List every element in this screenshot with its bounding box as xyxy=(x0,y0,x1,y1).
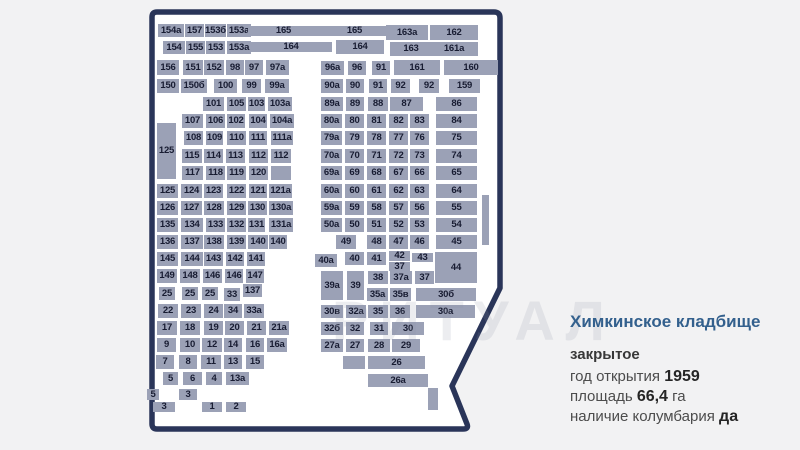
map-section-47: 47 xyxy=(389,235,408,249)
map-section-37: 37 xyxy=(415,271,434,284)
map-section-31: 31 xyxy=(370,322,388,335)
map-section-65: 65 xyxy=(436,166,477,180)
map-section-55: 55 xyxy=(436,201,477,215)
map-section-132: 132 xyxy=(227,218,246,232)
map-section-66: 66 xyxy=(410,166,429,180)
map-section-36: 36 xyxy=(390,305,410,318)
map-section-68: 68 xyxy=(367,166,386,180)
map-section-50: 50 xyxy=(345,218,364,232)
map-section-37: 37 xyxy=(389,262,410,271)
info-row-opened: год открытия 1959 xyxy=(570,367,796,387)
map-section-12: 12 xyxy=(202,338,222,352)
map-section-69a: 69a xyxy=(321,166,342,180)
map-section-58: 58 xyxy=(367,201,386,215)
map-section-136: 136 xyxy=(157,235,178,249)
map-section-40a: 40a xyxy=(315,254,337,267)
map-section-117: 117 xyxy=(182,166,203,180)
map-section-113: 113 xyxy=(226,149,245,163)
map-section-78: 78 xyxy=(367,131,386,145)
map-section-137: 137 xyxy=(243,284,262,297)
map-section-130a: 130a xyxy=(269,201,293,215)
map-section-26a: 26a xyxy=(368,374,428,387)
map-section-146: 146 xyxy=(225,269,243,283)
map-section-3: 3 xyxy=(179,389,197,400)
map-section-125: 125 xyxy=(157,123,176,179)
map-section-153a: 153a xyxy=(227,41,251,54)
map-section-21: 21 xyxy=(247,321,266,335)
columbarium-label: наличие колумбария xyxy=(570,408,715,425)
map-section-131a: 131a xyxy=(269,218,293,232)
map-section-40: 40 xyxy=(345,252,364,265)
map-section-34: 34 xyxy=(224,304,242,318)
map-section xyxy=(482,195,489,245)
area-label: площадь xyxy=(570,388,633,405)
map-section-135: 135 xyxy=(157,218,178,232)
map-section-73: 73 xyxy=(410,149,429,163)
map-section-83: 83 xyxy=(410,114,429,128)
map-section-29: 29 xyxy=(392,339,420,352)
map-section-148: 148 xyxy=(180,269,200,283)
map-section-62: 62 xyxy=(389,184,408,198)
map-section-13a: 13a xyxy=(226,372,249,385)
map-section-44: 44 xyxy=(435,252,477,283)
cemetery-map-widget: 154a157153б153a165165163a162154155153153… xyxy=(0,0,800,450)
map-section-165: 165 xyxy=(319,26,390,36)
area-value: 66,4 xyxy=(637,388,668,405)
map-section-27a: 27a xyxy=(321,339,343,352)
map-section-125: 125 xyxy=(157,184,178,198)
map-section-82: 82 xyxy=(389,114,408,128)
opened-value: 1959 xyxy=(664,368,700,385)
map-section-129: 129 xyxy=(227,201,246,215)
map-section-14: 14 xyxy=(224,338,242,352)
map-section-59a: 59a xyxy=(321,201,342,215)
map-section-90: 90 xyxy=(346,79,364,93)
map-section-91: 91 xyxy=(369,79,387,93)
map-section-54: 54 xyxy=(436,218,477,232)
map-section-59: 59 xyxy=(345,201,364,215)
map-section-16a: 16a xyxy=(267,338,287,352)
map-section-162: 162 xyxy=(430,25,478,40)
map-section-101: 101 xyxy=(203,97,224,111)
map-section-119: 119 xyxy=(227,166,246,180)
map-section-30б: 30б xyxy=(416,288,476,301)
columbarium-value: да xyxy=(719,408,738,425)
map-section-26: 26 xyxy=(368,356,425,369)
map-section-108: 108 xyxy=(184,131,203,145)
map-section xyxy=(428,388,438,410)
map-section-147: 147 xyxy=(246,269,264,283)
map-section-150: 150 xyxy=(157,79,179,93)
map-section-121: 121 xyxy=(249,184,267,198)
map-section-72: 72 xyxy=(389,149,408,163)
map-section-91: 91 xyxy=(372,61,390,75)
map-section-81: 81 xyxy=(367,114,386,128)
map-section-130: 130 xyxy=(248,201,267,215)
map-section-16: 16 xyxy=(246,338,264,352)
map-section-32: 32 xyxy=(346,322,364,335)
map-section-33a: 33a xyxy=(244,304,264,318)
map-section-155: 155 xyxy=(186,41,205,54)
map-section-102: 102 xyxy=(227,114,245,128)
map-section-70a: 70a xyxy=(321,149,342,163)
map-section-105: 105 xyxy=(227,97,246,111)
map-section-164: 164 xyxy=(336,40,384,54)
map-section-13: 13 xyxy=(224,355,242,369)
map-section-106: 106 xyxy=(206,114,225,128)
map-section-99a: 99a xyxy=(265,79,289,93)
map-section-8: 8 xyxy=(179,355,197,369)
map-section-140: 140 xyxy=(269,235,287,249)
map-section-141: 141 xyxy=(247,252,265,266)
map-section-70: 70 xyxy=(345,149,364,163)
map-section-63: 63 xyxy=(410,184,429,198)
map-section-6: 6 xyxy=(183,372,202,385)
map-section-57: 57 xyxy=(389,201,408,215)
map-section-110: 110 xyxy=(227,131,246,145)
map-section-37a: 37a xyxy=(390,271,412,284)
map-section-99: 99 xyxy=(242,79,261,93)
map-section-5: 5 xyxy=(147,389,159,400)
map-section-120: 120 xyxy=(249,166,268,180)
map-section-149: 149 xyxy=(157,269,177,283)
map-section-49: 49 xyxy=(336,235,356,249)
map-section-115: 115 xyxy=(182,149,202,163)
map-section-56: 56 xyxy=(410,201,429,215)
map-section-32a: 32a xyxy=(346,305,366,318)
map-section-118: 118 xyxy=(206,166,225,180)
map-section-69: 69 xyxy=(345,166,364,180)
map-section-107: 107 xyxy=(182,114,203,128)
map-section-131: 131 xyxy=(248,218,265,232)
map-section-128: 128 xyxy=(204,201,224,215)
map-section-35a: 35a xyxy=(367,288,388,301)
map-section-89a: 89a xyxy=(321,97,343,111)
map-section-98: 98 xyxy=(226,60,244,75)
map-section-153: 153 xyxy=(206,41,225,54)
map-section-15: 15 xyxy=(246,355,264,369)
map-section-27: 27 xyxy=(346,339,364,352)
map-section xyxy=(271,166,291,180)
map-section-43: 43 xyxy=(412,253,433,262)
map-section-60a: 60a xyxy=(321,184,342,198)
map-section-30a: 30a xyxy=(416,305,475,318)
map-section-163: 163 xyxy=(390,42,432,56)
map-section-3: 3 xyxy=(153,402,175,412)
map-section-152: 152 xyxy=(204,60,224,75)
map-section-163a: 163a xyxy=(386,25,428,40)
map-section-32б: 32б xyxy=(321,322,343,335)
map-section-161a: 161a xyxy=(430,42,478,56)
map-section-156: 156 xyxy=(157,60,179,75)
map-section-144: 144 xyxy=(181,252,203,266)
map-section-112: 112 xyxy=(249,149,268,163)
map-section-151: 151 xyxy=(183,60,203,75)
map-section-103a: 103a xyxy=(268,97,292,111)
map-section-25: 25 xyxy=(159,287,175,300)
map-section-111: 111 xyxy=(249,131,267,145)
map-section-19: 19 xyxy=(204,321,223,335)
map-section-92: 92 xyxy=(419,79,439,93)
map-section-28: 28 xyxy=(368,339,390,352)
info-row-columbarium: наличие колумбария да xyxy=(570,407,796,427)
map-section-25: 25 xyxy=(202,287,218,300)
map-section-142: 142 xyxy=(226,252,244,266)
map-section-96: 96 xyxy=(348,61,366,75)
map-section-64: 64 xyxy=(436,184,477,198)
map-section-35: 35 xyxy=(368,305,388,318)
map-section-51: 51 xyxy=(367,218,386,232)
map-section-89: 89 xyxy=(346,97,364,111)
map-section-75: 75 xyxy=(436,131,477,145)
map-section-71: 71 xyxy=(367,149,386,163)
map-section-111a: 111a xyxy=(271,131,293,145)
map-section-92: 92 xyxy=(391,79,410,93)
map-section-100: 100 xyxy=(214,79,237,93)
map-section-104a: 104a xyxy=(270,114,294,128)
map-section-121a: 121a xyxy=(269,184,292,198)
map-section-139: 139 xyxy=(227,235,246,249)
map-section-39a: 39a xyxy=(321,271,343,300)
map-section-74: 74 xyxy=(436,149,477,163)
map-section-38: 38 xyxy=(368,271,388,284)
map-section-42: 42 xyxy=(389,251,410,261)
map-section-127: 127 xyxy=(181,201,202,215)
map-section-35в: 35в xyxy=(390,288,411,301)
map-section-23: 23 xyxy=(181,304,201,318)
map-section-5: 5 xyxy=(163,372,178,385)
map-section-25: 25 xyxy=(182,287,198,300)
map-section-76: 76 xyxy=(410,131,429,145)
map-section-30в: 30в xyxy=(321,305,343,318)
map-section-150б: 150б xyxy=(181,79,207,93)
map-section-159: 159 xyxy=(449,79,480,93)
map-section-10: 10 xyxy=(180,338,200,352)
map-section-7: 7 xyxy=(156,355,174,369)
area-unit: га xyxy=(672,388,685,405)
map-section-61: 61 xyxy=(367,184,386,198)
map-section-30: 30 xyxy=(392,322,424,335)
map-section-17: 17 xyxy=(157,321,177,335)
map-section-97: 97 xyxy=(245,60,263,75)
map-section-60: 60 xyxy=(345,184,364,198)
map-section-160: 160 xyxy=(444,60,498,75)
cemetery-info-panel: Химкинское кладбище закрытое год открыти… xyxy=(570,312,796,427)
map-section-1: 1 xyxy=(202,402,222,412)
cemetery-title: Химкинское кладбище xyxy=(570,312,796,332)
map-section-153б: 153б xyxy=(205,24,226,37)
map-section-112: 112 xyxy=(271,149,291,163)
map-section-79: 79 xyxy=(345,131,364,145)
opened-label: год открытия xyxy=(570,368,660,385)
map-section-104: 104 xyxy=(249,114,267,128)
map-section-137: 137 xyxy=(181,235,203,249)
map-section-80: 80 xyxy=(345,114,364,128)
map-section-146: 146 xyxy=(203,269,222,283)
map-section-77: 77 xyxy=(389,131,408,145)
map-section-134: 134 xyxy=(181,218,203,232)
map-section-80a: 80a xyxy=(321,114,342,128)
map-section-161: 161 xyxy=(394,60,440,75)
map-section-157: 157 xyxy=(185,24,204,37)
map-section-79a: 79a xyxy=(321,131,342,145)
map-section-53: 53 xyxy=(410,218,429,232)
map-section-96a: 96a xyxy=(321,61,344,75)
info-row-area: площадь 66,4 га xyxy=(570,387,796,407)
map-section-33: 33 xyxy=(224,288,240,301)
map-section-50a: 50a xyxy=(321,218,342,232)
map-section-123: 123 xyxy=(204,184,223,198)
map-section-165: 165 xyxy=(248,26,319,36)
map-section-48: 48 xyxy=(367,235,386,249)
map-section-122: 122 xyxy=(227,184,246,198)
map-section-21a: 21a xyxy=(269,321,289,335)
map-section-140: 140 xyxy=(248,235,268,249)
map-section-103: 103 xyxy=(248,97,265,111)
map-section-126: 126 xyxy=(157,201,178,215)
map-section-84: 84 xyxy=(436,114,477,128)
map-section-97a: 97a xyxy=(266,60,289,75)
map-section-52: 52 xyxy=(389,218,408,232)
map-section-154a: 154a xyxy=(158,24,184,37)
map-section-41: 41 xyxy=(367,252,386,265)
map-section-114: 114 xyxy=(204,149,223,163)
map-section-67: 67 xyxy=(389,166,408,180)
map-section-124: 124 xyxy=(181,184,202,198)
map-section-18: 18 xyxy=(180,321,200,335)
cemetery-status: закрытое xyxy=(570,346,796,363)
map-section-88: 88 xyxy=(368,97,388,111)
map-section-164: 164 xyxy=(250,42,332,52)
map-section-45: 45 xyxy=(436,235,477,249)
map-section-86: 86 xyxy=(436,97,477,111)
map-section-133: 133 xyxy=(206,218,225,232)
map-section-11: 11 xyxy=(201,355,221,369)
map-section-90a: 90a xyxy=(321,79,343,93)
map-section-154: 154 xyxy=(163,41,185,54)
map-section-24: 24 xyxy=(204,304,223,318)
map-section xyxy=(343,356,365,369)
map-section-22: 22 xyxy=(158,304,178,318)
map-section-87: 87 xyxy=(390,97,423,111)
map-section-46: 46 xyxy=(410,235,429,249)
map-section-9: 9 xyxy=(157,338,176,352)
map-section-138: 138 xyxy=(204,235,224,249)
map-section-2: 2 xyxy=(226,402,246,412)
map-section-20: 20 xyxy=(225,321,244,335)
map-section-145: 145 xyxy=(157,252,178,266)
map-section-109: 109 xyxy=(206,131,223,145)
map-section-4: 4 xyxy=(206,372,222,385)
map-section-143: 143 xyxy=(204,252,223,266)
map-section-39: 39 xyxy=(347,271,364,300)
